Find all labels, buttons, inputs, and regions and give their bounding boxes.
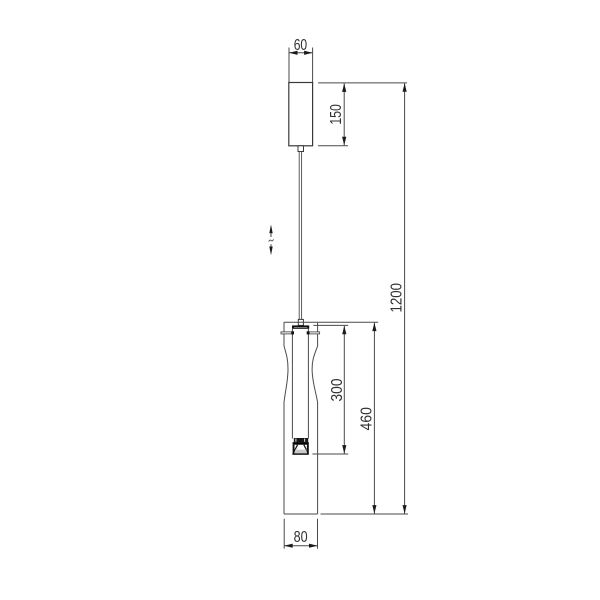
svg-text:1200: 1200 bbox=[389, 283, 406, 313]
svg-text:80: 80 bbox=[294, 529, 308, 546]
svg-text:300: 300 bbox=[329, 378, 346, 401]
svg-text:460: 460 bbox=[358, 407, 375, 431]
svg-text:150: 150 bbox=[328, 104, 345, 125]
